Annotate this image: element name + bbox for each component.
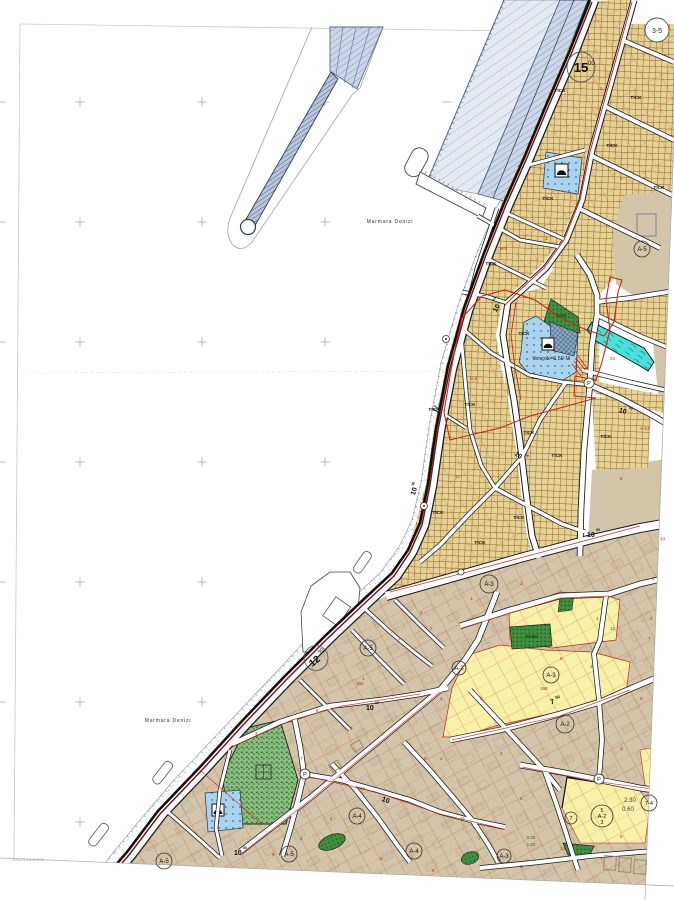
svg-text:Marmara Denizi: Marmara Denizi (145, 718, 192, 724)
svg-text:10: 10 (234, 850, 242, 857)
svg-text:0.30: 0.30 (527, 835, 536, 840)
svg-text:P: P (597, 777, 601, 783)
svg-text:00: 00 (243, 846, 247, 850)
svg-text:TİCK: TİCK (542, 195, 554, 202)
svg-text:16: 16 (360, 786, 366, 791)
svg-text:Yençok=6.50 M: Yençok=6.50 M (532, 356, 570, 362)
svg-text:TİCK: TİCK (513, 514, 525, 521)
svg-text:TİCK: TİCK (551, 452, 563, 459)
svg-text:A-5: A-5 (159, 859, 169, 865)
svg-text:TİCK: TİCK (474, 539, 486, 546)
svg-text:A-4: A-4 (352, 814, 362, 820)
svg-text:Marmara Denizi: Marmara Denizi (367, 219, 414, 225)
svg-text:00: 00 (375, 701, 379, 705)
svg-text:TİCK: TİCK (428, 406, 440, 413)
svg-text:TİCK: TİCK (606, 142, 618, 149)
svg-text:15: 15 (574, 60, 588, 75)
svg-text:TİCK: TİCK (523, 429, 535, 436)
svg-text:00: 00 (596, 528, 600, 532)
svg-text:2.30: 2.30 (624, 798, 636, 804)
svg-text:P: P (587, 381, 591, 387)
svg-text:0.60: 0.60 (622, 807, 634, 813)
svg-text:24: 24 (610, 356, 616, 361)
svg-text:TİCK: TİCK (464, 401, 476, 408)
svg-text:PARK: PARK (526, 634, 539, 639)
svg-text:A-5: A-5 (637, 247, 647, 253)
svg-text:A-5: A-5 (284, 852, 294, 858)
svg-text:14: 14 (560, 846, 566, 851)
svg-text:TİCK: TİCK (518, 330, 530, 337)
svg-text:A-3: A-3 (546, 673, 556, 679)
svg-text:168: 168 (540, 686, 548, 691)
svg-text:TİCK: TİCK (432, 509, 444, 516)
svg-text:7: 7 (569, 816, 572, 822)
svg-text:TİCK: TİCK (653, 184, 665, 191)
svg-text:A-5: A-5 (363, 646, 373, 652)
svg-text:A-3: A-3 (484, 582, 494, 588)
svg-text:B-5: B-5 (500, 246, 508, 251)
svg-text:A-2: A-2 (560, 722, 570, 728)
svg-text:12: 12 (610, 626, 616, 631)
svg-text:14: 14 (660, 536, 666, 541)
svg-text:10: 10 (587, 532, 595, 539)
svg-text:3-5: 3-5 (652, 28, 662, 35)
svg-text:17: 17 (455, 474, 461, 479)
svg-text:A-3: A-3 (454, 666, 464, 672)
svg-text:11: 11 (460, 816, 465, 821)
svg-text:00: 00 (588, 61, 595, 67)
svg-text:TİCK: TİCK (554, 87, 566, 94)
svg-text:2021-Ö-13-Ö-1-Ö: 2021-Ö-13-Ö-1-Ö (12, 857, 44, 862)
svg-text:A-14: A-14 (640, 426, 650, 431)
svg-text:B-5: B-5 (470, 376, 478, 381)
svg-text:PARK: PARK (557, 314, 568, 318)
svg-text:TİCK: TİCK (485, 260, 497, 267)
svg-text:3: 3 (600, 820, 603, 826)
svg-text:7-4: 7-4 (645, 801, 653, 807)
svg-text:TİCK: TİCK (630, 94, 642, 101)
svg-text:A-3: A-3 (499, 854, 509, 860)
svg-text:P: P (303, 772, 307, 778)
svg-text:1.20: 1.20 (527, 842, 536, 847)
svg-text:192: 192 (356, 681, 364, 686)
svg-text:10: 10 (366, 705, 374, 712)
svg-text:A-4: A-4 (409, 849, 419, 855)
svg-text:TİCK: TİCK (600, 433, 612, 440)
